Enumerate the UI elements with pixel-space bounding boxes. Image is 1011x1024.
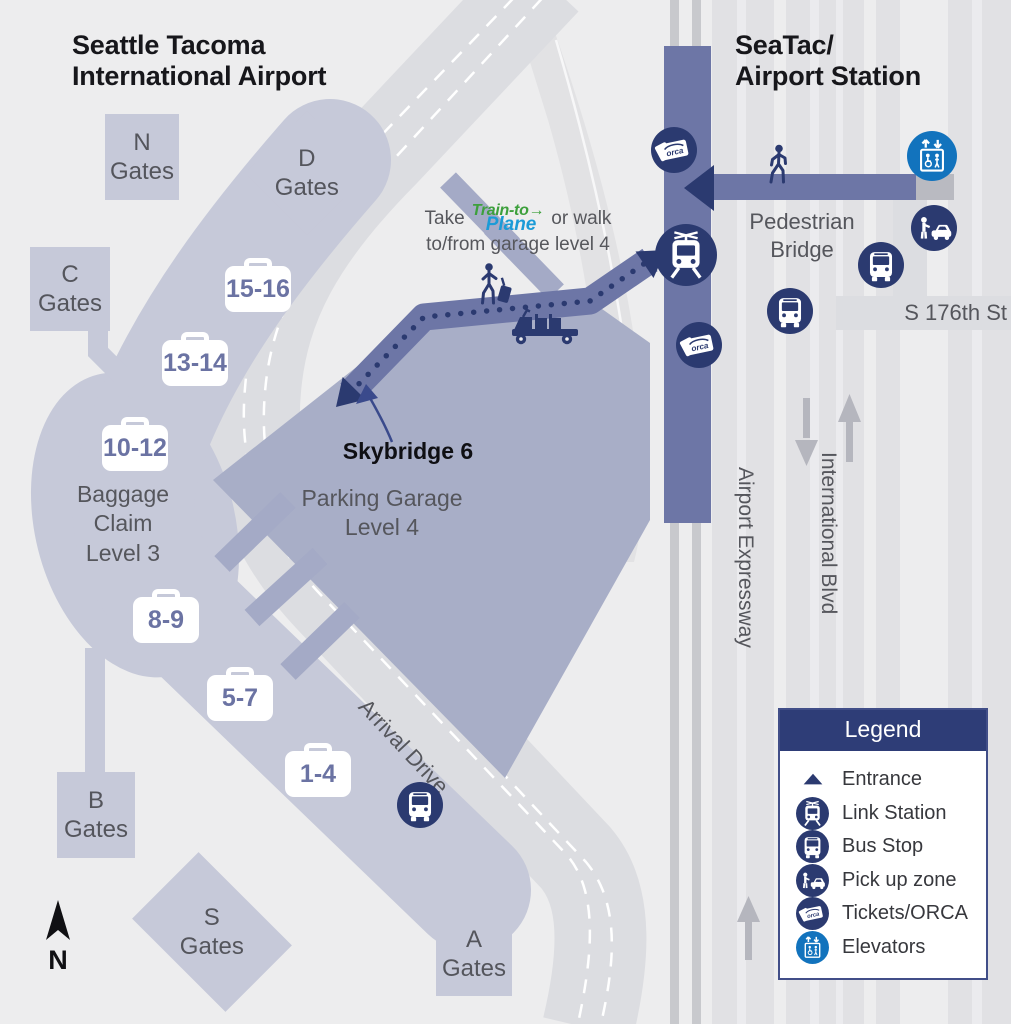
pickup-zone-icon xyxy=(911,205,957,256)
north-indicator: N xyxy=(38,898,78,976)
gate-a: A Gates xyxy=(436,912,512,996)
shuttle-cart-icon xyxy=(508,306,586,353)
tickets-orca-icon xyxy=(651,127,697,178)
legend-title: Legend xyxy=(780,710,986,751)
international-blvd-label: International Blvd xyxy=(816,452,840,614)
airport-expressway-label: Airport Expressway xyxy=(733,467,757,648)
s176th-street-label: S 176th St xyxy=(862,299,1007,327)
tickets-orca-icon xyxy=(796,897,829,930)
note-suffix: or walk xyxy=(551,208,611,230)
logo-plane: Plane xyxy=(486,216,545,234)
legend-item-pickup-zone: Pick up zone xyxy=(796,864,986,898)
link-station-icon xyxy=(655,224,717,291)
gate-b: B Gates xyxy=(57,772,135,858)
north-label: N xyxy=(38,945,78,976)
pedestrian-bridge-band xyxy=(702,174,918,200)
baggage-claim-chip: 10-12 xyxy=(102,425,168,471)
north-arrow-icon xyxy=(42,898,74,944)
gate-n: N Gates xyxy=(105,114,179,200)
legend-item-entrance: Entrance xyxy=(796,763,986,797)
parking-garage-label: Parking Garage Level 4 xyxy=(282,484,482,543)
page-title-station: SeaTac/ Airport Station xyxy=(735,30,921,93)
legend-item-link-station: Link Station xyxy=(796,797,986,831)
b-gates-stem xyxy=(85,648,105,778)
baggage-claim-chip: 15-16 xyxy=(225,266,291,312)
baggage-claim-chip: 5-7 xyxy=(207,675,273,721)
baggage-claim-label: Baggage Claim Level 3 xyxy=(47,480,199,568)
bus-stop-icon xyxy=(858,242,904,293)
airport-map: orca xyxy=(0,0,1011,1024)
gate-c: C Gates xyxy=(30,247,110,331)
skybridge6-label: Skybridge 6 xyxy=(318,437,498,466)
bus-stop-icon xyxy=(767,288,813,339)
legend: Legend Entrance Link Station Bus Stop Pi… xyxy=(778,708,988,980)
note-line2: to/from garage level 4 xyxy=(398,234,638,256)
baggage-claim-chip: 13-14 xyxy=(162,340,228,386)
baggage-claim-chip: 1-4 xyxy=(285,751,351,797)
train-to-plane-note: Take Train-to→ Plane or walk to/from gar… xyxy=(398,203,638,256)
train-to-plane-logo: Train-to→ Plane xyxy=(472,203,545,234)
a-gates-stem xyxy=(458,866,477,918)
pickup-zone-icon xyxy=(796,864,829,897)
bus-stop-icon xyxy=(397,782,443,833)
elevators-icon xyxy=(907,131,957,186)
tickets-orca-icon xyxy=(676,322,722,373)
note-prefix: Take xyxy=(425,208,465,230)
elevators-icon xyxy=(796,931,829,964)
baggage-claim-chip: 8-9 xyxy=(133,597,199,643)
entrance-icon xyxy=(796,763,829,796)
legend-item-bus-stop: Bus Stop xyxy=(796,830,986,864)
legend-item-tickets-orca: Tickets/ORCA xyxy=(796,897,986,931)
pedestrian-icon xyxy=(766,144,792,191)
bus-stop-icon xyxy=(796,830,829,863)
link-station-icon xyxy=(796,797,829,830)
legend-item-elevators: Elevators xyxy=(796,931,986,965)
page-title-airport: Seattle Tacoma International Airport xyxy=(72,30,326,93)
